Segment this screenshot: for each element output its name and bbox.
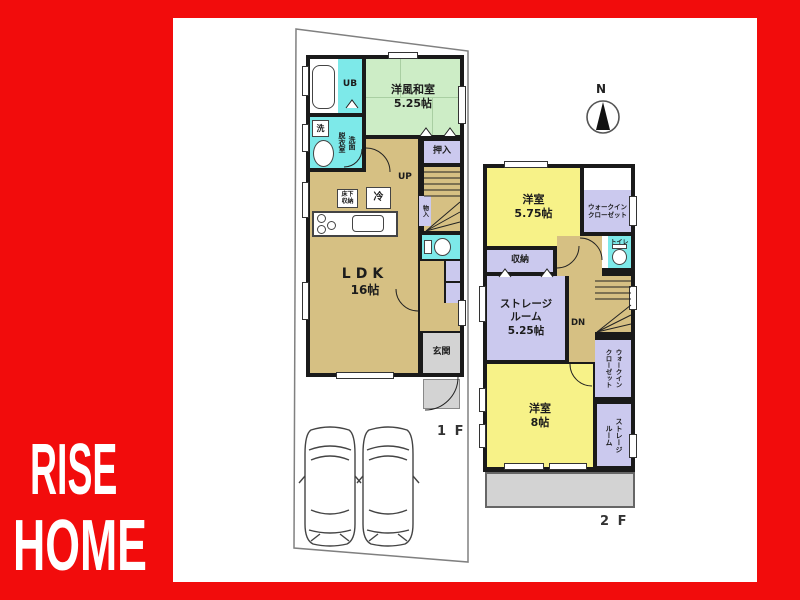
stove-burner [327,221,336,230]
washroom-label-left: 脱衣室 [337,132,347,153]
landing-area [584,168,631,190]
window [479,286,486,322]
washing-machine: 洗 [312,120,329,137]
floor2-label: 2 F [600,514,628,529]
window [302,124,309,152]
window [458,86,466,124]
wic-mid-left: クローゼット [603,349,613,388]
window [458,300,466,326]
genkan-label: 玄関 [432,347,450,358]
wic-top-l2: クローゼット [588,211,627,219]
washitsu-size: 5.25帖 [394,97,432,111]
window [629,434,637,458]
underfloor-storage: 床下 収納 [337,189,358,208]
shoe-cabinet [444,261,460,303]
ldk-name: LDK [342,266,388,284]
monoire-label: 物入 [421,205,430,217]
floorplan-flyer: RISE HOME [0,0,800,600]
tatami-line [432,97,433,135]
floor1-label: 1 F [437,424,465,439]
up-label: UP [398,172,420,184]
stove-burner [317,214,326,223]
brand-line-1: RISE [30,434,117,506]
window [629,196,637,226]
shoe-cabinet-divider [446,281,462,283]
ldk-label: LDK 16帖 [330,264,400,300]
toilet-tank [424,240,432,254]
hall-2f-upper [557,236,602,276]
bedroom1-size: 5.75帖 [514,207,552,221]
storage-room-l2: ルーム [510,311,541,324]
storage-room-size: 5.25帖 [508,325,544,338]
wic-mid-right: ウォークイン [613,349,623,388]
storage-room: ストレージ ルーム 5.25帖 [487,276,565,360]
closet-shuno: 収納 [487,250,553,272]
bedroom1-room: 洋室 5.75帖 [487,168,580,246]
oshiire-label: 押入 [433,146,451,157]
washitsu-name: 洋風和室 [391,83,435,97]
underfloor-l2: 収納 [341,199,353,205]
window [388,52,418,59]
compass-north-label: N [596,82,606,96]
monoire-closet: 物入 [419,196,431,226]
bedroom1-name: 洋室 [523,193,545,207]
washitsu-room: 洋風和室 5.25帖 [366,59,460,135]
shuno-label: 収納 [511,255,529,266]
wic-top-l1: ウォークイン [588,203,627,211]
window [302,282,309,320]
window [629,286,637,310]
window [504,463,544,470]
fridge-box: 冷 [366,187,391,209]
entrance-porch [423,379,460,409]
window [302,182,309,218]
staircase-down [595,276,631,332]
bedroom2-size: 8帖 [531,416,550,430]
window [504,161,548,168]
unit-bath-room: UB [338,59,362,113]
window [302,66,309,96]
kitchen-sink [352,215,384,232]
washroom-label-right: 洗面 [347,136,357,150]
washer-label: 洗 [317,124,325,134]
window [479,424,486,448]
walkin-closet-mid: クローゼット ウォークイン [595,340,631,397]
balcony [485,472,635,508]
bathtub [312,65,335,109]
stove-burner [317,225,326,234]
storage-small-left: ルーム [604,425,614,446]
brand-line-2: HOME [13,510,147,582]
window [479,388,486,412]
fridge-label: 冷 [374,192,384,205]
storage-small: ルーム ストレージ [597,404,631,466]
toilet-bowl [434,238,451,256]
genkan-entrance: 玄関 [423,333,460,373]
bedroom2-name: 洋室 [529,402,551,416]
wash-basin [313,140,334,167]
window [336,372,394,379]
down-label: DN [571,318,593,330]
unit-bath-label: UB [343,79,357,90]
storage-small-right: ストレージ [614,418,624,453]
walkin-closet-top: ウォークイン クローゼット [584,190,631,232]
window [549,463,587,470]
storage-room-l1: ストレージ [500,298,552,311]
oshiire-closet: 押入 [424,141,460,163]
bedroom2-room: 洋室 8帖 [487,364,593,467]
toilet-bowl [612,249,627,265]
washroom-label: 脱衣室 洗面 [334,118,360,167]
ldk-size: 16帖 [351,283,380,298]
